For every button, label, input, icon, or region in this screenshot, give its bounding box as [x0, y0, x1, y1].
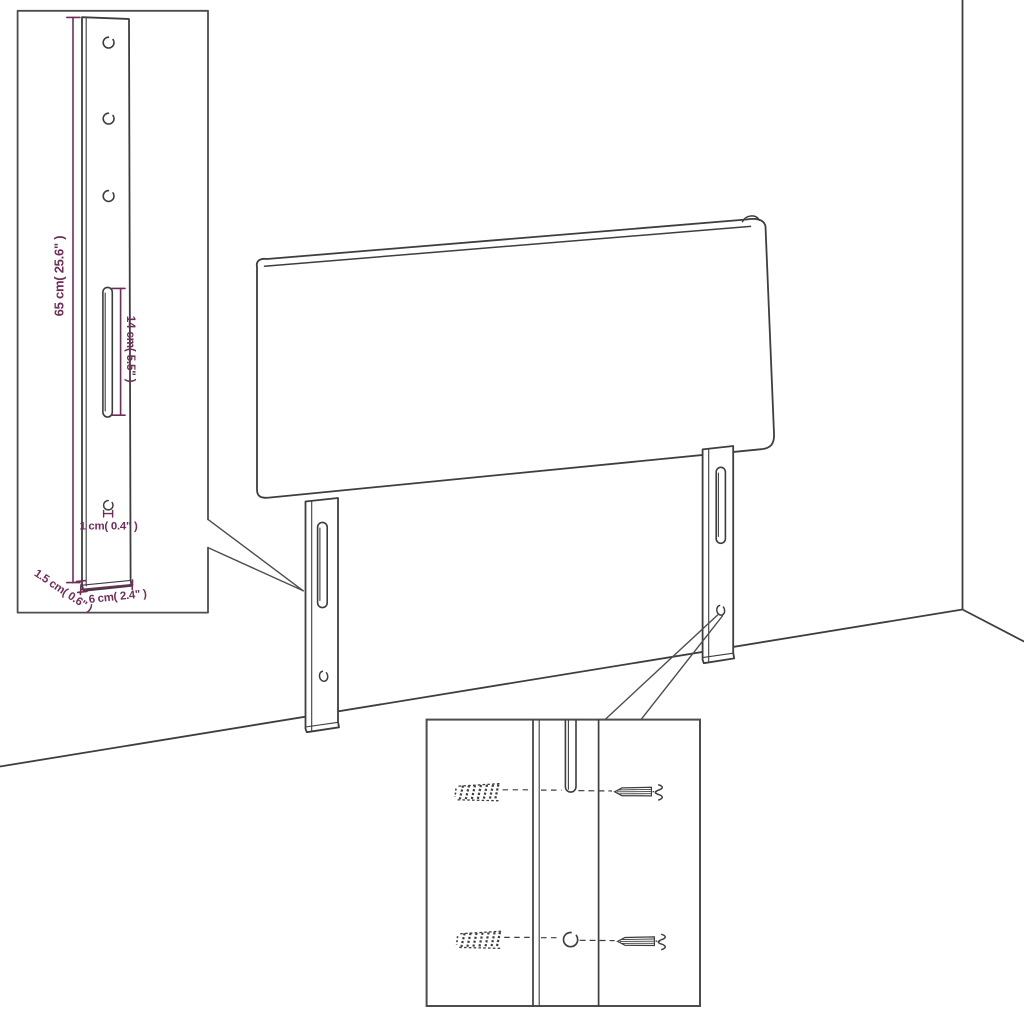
headboard-assembly-diagram: 65 cm( 25.6" ) 14 cm( 5.5" ) 1 cm( 0.4" … [0, 0, 1024, 1024]
callout-line [605, 615, 718, 720]
floor-line-right [963, 610, 1024, 642]
headboard-leg-right [703, 446, 735, 663]
dimension-label-leg-height: 65 cm( 25.6" ) [52, 236, 67, 317]
dim-tick [80, 585, 81, 595]
callout-line [641, 616, 722, 720]
inset-leg-callout-lines [208, 519, 303, 590]
inset-leg-drawing [82, 17, 132, 591]
dimension-label-leg-width: 6 cm( 2.4" ) [88, 588, 148, 606]
dimension-label-slot-length: 14 cm( 5.5" ) [124, 316, 138, 383]
dim-tick-1-5cm [76, 581, 85, 582]
headboard-panel [257, 216, 774, 498]
dimension-label-hole-diameter: 1 cm( 0.4" ) [79, 521, 138, 533]
dim-tick-1-5cm [78, 591, 87, 592]
callout-line [208, 548, 303, 591]
leg-slot [716, 467, 725, 543]
inset-border [427, 720, 700, 1006]
headboard-leg-left [306, 498, 340, 732]
inset-leg-detail: 65 cm( 25.6" ) 14 cm( 5.5" ) 1 cm( 0.4" … [18, 11, 208, 615]
callout-line [208, 519, 303, 590]
inset-leg-slot [103, 287, 112, 417]
leg-slot [318, 522, 328, 607]
